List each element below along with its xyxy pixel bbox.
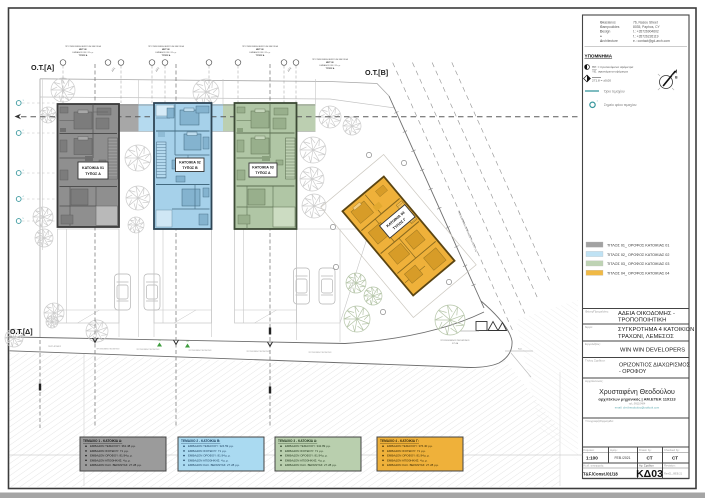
svg-text:ΤΥΠΟΣ Α: ΤΥΠΟΣ Α xyxy=(79,54,88,57)
svg-text:Έργο:: Έργο: xyxy=(584,325,593,329)
svg-text:ΕΜΒΑΔΟΝ ΑΠΟΘΗΚΗΣ: 4 μ.μ.: ΕΜΒΑΔΟΝ ΑΠΟΘΗΚΗΣ: 4 μ.μ. xyxy=(188,458,229,462)
svg-text:ΕΜΒΑΔΟΝ ΙΣΟΓΕΙΟΥ: 71 μ.μ.: ΕΜΒΑΔΟΝ ΙΣΟΓΕΙΟΥ: 71 μ.μ. xyxy=(188,449,227,453)
svg-text:T&F./Const./01/18: T&F./Const./01/18 xyxy=(583,472,618,477)
svg-text:ΠΡΟΤΕΙΝΟΜΕΝΗ ΔΙΩΡΟΦΗ ΚΑΤΟΙΚΙΑ: ΠΡΟΤΕΙΝΟΜΕΝΗ ΔΙΩΡΟΦΗ ΚΑΤΟΙΚΙΑ xyxy=(312,58,348,61)
svg-text:ΤΙΤΛΟΣ 04_ ΟΡΟΦΟΣ ΚΑΤΟΙΚΙΑΣ 04: ΤΙΤΛΟΣ 04_ ΟΡΟΦΟΣ ΚΑΤΟΙΚΙΑΣ 04 xyxy=(607,272,669,276)
svg-text:ΜΕΓ.ΥΨ.: ΜΕΓ.ΥΨ. xyxy=(326,62,334,64)
svg-text:ΥΕ. υφιστάμενα υψόμετρα: ΥΕ. υφιστάμενα υψόμετρα xyxy=(592,70,628,74)
svg-text:ΕΜΒΑΔΟΝ ΟΡΟΦΟΥ: 81.94 μ.μ.: ΕΜΒΑΔΟΝ ΟΡΟΦΟΥ: 81.94 μ.μ. xyxy=(188,454,231,458)
svg-text:Αρ. Σχεδίου: Αρ. Σχεδίου xyxy=(639,463,654,467)
svg-text:ΠΡΟΤΕΙΝΟΜΕΝΗ ΔΙΩΡΟΦΗ ΚΑΤΟΙΚΙΑ: ΠΡΟΤΕΙΝΟΜΕΝΗ ΔΙΩΡΟΦΗ ΚΑΤΟΙΚΙΑ xyxy=(148,45,184,48)
svg-text:Revision:: Revision: xyxy=(664,463,676,467)
svg-text:1:100: 1:100 xyxy=(586,456,598,461)
svg-text:ΜΕΓ.ΥΨ.: ΜΕΓ.ΥΨ. xyxy=(162,49,170,51)
svg-text:ΤΥΠΟΣ Α: ΤΥΠΟΣ Α xyxy=(256,54,265,57)
svg-text:ΤΡΟΠΟΠΟΙΗΤΙΚΗ: ΤΡΟΠΟΠΟΙΗΤΙΚΗ xyxy=(618,318,666,324)
svg-text:ΑΔΕΙΑ ΟΙΚΟΔΟΜΗΣ -: ΑΔΕΙΑ ΟΙΚΟΔΟΜΗΣ - xyxy=(618,311,675,317)
svg-text:Φάση/Προμελέτη:: Φάση/Προμελέτη: xyxy=(585,310,609,314)
svg-text:ΕΜΒΑΔΟΝ ΑΠΟΘΗΚΗΣ: 4 μ.μ.: ΕΜΒΑΔΟΝ ΑΠΟΘΗΚΗΣ: 4 μ.μ. xyxy=(285,458,326,462)
svg-text:e.: contact@gd-arch.com: e.: contact@gd-arch.com xyxy=(633,39,670,43)
svg-text:αρχιτέκτων μηχανικός | ΑΜ.ΕΤΕ: αρχιτέκτων μηχανικός | ΑΜ.ΕΤΕΚ 119113 xyxy=(598,397,676,402)
svg-text:ΤΥΠΟΣ Β: ΤΥΠΟΣ Β xyxy=(182,166,198,170)
svg-text:ΕΜΒΑΔΟΝ ΑΠΟΘΗΚΗΣ: 4 μ.μ.: ΕΜΒΑΔΟΝ ΑΠΟΘΗΚΗΣ: 4 μ.μ. xyxy=(387,458,428,462)
svg-text:ΕΜΒΑΔΟΝ ΤΕΜΑΧΙΟΥ: 361.48 μ.μ.: ΕΜΒΑΔΟΝ ΤΕΜΑΧΙΟΥ: 361.48 μ.μ. xyxy=(90,444,136,448)
svg-text:Αρχιτέκτονας:: Αρχιτέκτονας: xyxy=(585,379,603,383)
svg-text:ΕΜΒΑΔΟΝ ΟΙΚ. 81 τ.μ.: ΕΜΒΑΔΟΝ ΟΙΚ. 81 τ.μ. xyxy=(156,51,177,54)
svg-text:ΧΥΤ.ΔΑ: ΧΥΤ.ΔΑ xyxy=(452,342,459,345)
svg-text:Gkasianos: Gkasianos xyxy=(600,21,616,25)
svg-text:ΠΡΟΤΕΙΝΟΜΕΝΗ ΔΙΩΡΟΦΗ ΚΑΤΟΙΚΙΑ: ΠΡΟΤΕΙΝΟΜΕΝΗ ΔΙΩΡΟΦΗ ΚΑΤΟΙΚΙΑ xyxy=(242,45,278,48)
svg-text:ΕΜΒΑΔΟΝ ΟΙΚ. 81 τ.μ.: ΕΜΒΑΔΟΝ ΟΙΚ. 81 τ.μ. xyxy=(250,51,271,54)
svg-text:8035, Paphos, CY: 8035, Paphos, CY xyxy=(633,25,661,29)
svg-text:Σημείο ορίου τεμαχίου: Σημείο ορίου τεμαχίου xyxy=(604,103,637,107)
svg-text:ΕΜΒΑΔΟΝ ΚΑΛ. ΒΕΡΑΝΤΑΣ: 27.28 μ: ΕΜΒΑΔΟΝ ΚΑΛ. ΒΕΡΑΝΤΑΣ: 27.28 μ.μ. xyxy=(285,463,337,467)
svg-text:Υπογραφή/Σφραγίδα:: Υπογραφή/Σφραγίδα: xyxy=(585,419,614,423)
svg-text:ΤΙΤΛΟΣ 03_ ΟΡΟΦΟΣ ΚΑΤΟΙΚΙΑΣ 03: ΤΙΤΛΟΣ 03_ ΟΡΟΦΟΣ ΚΑΤΟΙΚΙΑΣ 03 xyxy=(607,262,669,266)
svg-text:Ο.Τ.[Α]: Ο.Τ.[Α] xyxy=(31,63,54,72)
svg-text:CT: CT xyxy=(672,456,678,461)
svg-text:Checked by:: Checked by: xyxy=(664,448,680,452)
svg-text:ΕΜΒΑΔΟΝ ΤΕΜΑΧΙΟΥ: 324.59 μ.μ.: ΕΜΒΑΔΟΝ ΤΕΜΑΧΙΟΥ: 324.59 μ.μ. xyxy=(188,444,234,448)
svg-text:ΚΑΤΟΙΚΙΑ 02: ΚΑΤΟΙΚΙΑ 02 xyxy=(179,161,200,165)
svg-text:WIN WIN DEVELOPERS: WIN WIN DEVELOPERS xyxy=(620,347,685,353)
svg-text:271.8 = ±0,00: 271.8 = ±0,00 xyxy=(592,79,611,83)
svg-text:ΣΥΓΚΡΟΤΗΜΑ 4 ΚΑΤΟΙΚΙΩΝ: ΣΥΓΚΡΟΤΗΜΑ 4 ΚΑΤΟΙΚΙΩΝ xyxy=(618,327,694,333)
svg-text:ΤΙΤΛΟΣ 01_ ΟΡΟΦΟΣ ΚΑΤΟΙΚΙΑΣ 01: ΤΙΤΛΟΣ 01_ ΟΡΟΦΟΣ ΚΑΤΟΙΚΙΑΣ 01 xyxy=(607,243,669,247)
svg-text:Χρυσταφένη Θεοδούλου: Χρυσταφένη Θεοδούλου xyxy=(599,388,675,396)
svg-text:76, Nasou Street: 76, Nasou Street xyxy=(633,21,658,25)
svg-text:ΤΥΠΟΣ Α: ΤΥΠΟΣ Α xyxy=(255,171,271,175)
svg-text:ΤΥΠΟΣ Α: ΤΥΠΟΣ Α xyxy=(162,54,171,57)
svg-text:ΠΡΟΤΕΙΝΟΜΕΝΗ ΔΙΩΡΟΦΗ ΚΑΤΟΙΚΙΑ: ΠΡΟΤΕΙΝΟΜΕΝΗ ΔΙΩΡΟΦΗ ΚΑΤΟΙΚΙΑ xyxy=(65,45,101,48)
svg-text:Τίτλος Σχεδίου:: Τίτλος Σχεδίου: xyxy=(585,359,605,363)
svg-text:ΤΕΜΑΧΙΟ 4 - ΚΑΤΟΙΚΙΑ Γ:: ΤΕΜΑΧΙΟ 4 - ΚΑΤΟΙΚΙΑ Γ: xyxy=(380,439,419,443)
svg-text:Design: Design xyxy=(600,30,610,34)
svg-text:Gampoulides: Gampoulides xyxy=(600,25,620,29)
svg-text:Β: Β xyxy=(675,76,678,80)
svg-text:ΤΕΜΑΧΙΟ 1 - ΚΑΤΟΙΚΙΑ Α:: ΤΕΜΑΧΙΟ 1 - ΚΑΤΟΙΚΙΑ Α: xyxy=(83,439,122,443)
svg-text:Ο.Τ.[Δ]: Ο.Τ.[Δ] xyxy=(10,329,33,336)
svg-text:ΕΜΒΑΔΟΝ ΤΕΜΑΧΙΟΥ: 376.40 μ.μ.: ΕΜΒΑΔΟΝ ΤΕΜΑΧΙΟΥ: 376.40 μ.μ. xyxy=(387,444,433,448)
svg-text:CT: CT xyxy=(646,456,652,461)
svg-text:ΜΕΓ.ΥΨ.: ΜΕΓ.ΥΨ. xyxy=(256,49,264,51)
svg-text:ΠΡΟΤΕΙΝΟΜΕΝΟΣ ΠΕΖΟΔΡΟΜΟΣ: ΠΡΟΤΕΙΝΟΜΕΝΟΣ ΠΕΖΟΔΡΟΜΟΣ xyxy=(440,339,470,342)
svg-text:FEB./2021: FEB./2021 xyxy=(614,456,630,460)
svg-text:ΕΜΒΑΔΟΝ ΤΕΜΑΧΙΟΥ: 342.89 μ.μ.: ΕΜΒΑΔΟΝ ΤΕΜΑΧΙΟΥ: 342.89 μ.μ. xyxy=(285,444,331,448)
svg-text:ΤΥΠΟΣ Α: ΤΥΠΟΣ Α xyxy=(326,67,335,70)
svg-text:ΕΜΒΑΔΟΝ ΙΣΟΓΕΙΟΥ: 71 μ.μ.: ΕΜΒΑΔΟΝ ΙΣΟΓΕΙΟΥ: 71 μ.μ. xyxy=(90,449,129,453)
svg-text:ΥΦΙΣΤ. ΔΡΟΜΟΣ: ΥΦΙΣΤ. ΔΡΟΜΟΣ xyxy=(48,345,61,348)
svg-text:ΕΜΒΑΔΟΝ ΚΑΛ. ΒΕΡΑΝΤΑΣ: 27.28 μ: ΕΜΒΑΔΟΝ ΚΑΛ. ΒΕΡΑΝΤΑΣ: 27.28 μ.μ. xyxy=(90,463,142,467)
svg-text:ΕΜΒΑΔΟΝ ΙΣΟΓΕΙΟΥ: 71 μ.μ.: ΕΜΒΑΔΟΝ ΙΣΟΓΕΙΟΥ: 71 μ.μ. xyxy=(285,449,324,453)
svg-text:ΤΕΜΑΧΙΟ 3 - ΚΑΤΟΙΚΙΑ Α:: ΤΕΜΑΧΙΟ 3 - ΚΑΤΟΙΚΙΑ Α: xyxy=(278,439,317,443)
svg-text:Ο.Τ.[Β]: Ο.Τ.[Β] xyxy=(365,68,388,77)
svg-text:ΕΜΒΑΔΟΝ ΟΙΚ. 81 τ.μ.: ΕΜΒΑΔΟΝ ΟΙΚ. 81 τ.μ. xyxy=(320,64,341,67)
svg-text:ΕΜΒΑΔΟΝ ΟΡΟΦΟΥ: 81.94 μ.μ.: ΕΜΒΑΔΟΝ ΟΡΟΦΟΥ: 81.94 μ.μ. xyxy=(387,454,430,458)
svg-text:ΕΜΒΑΔΟΝ ΚΑΛ. ΒΕΡΑΝΤΑΣ: 27.28 μ: ΕΜΒΑΔΟΝ ΚΑΛ. ΒΕΡΑΝΤΑΣ: 27.28 μ.μ. xyxy=(387,463,439,467)
svg-text:ΕΜΒΑΔΟΝ ΚΑΛ. ΒΕΡΑΝΤΑΣ: 27.28 μ: ΕΜΒΑΔΟΝ ΚΑΛ. ΒΕΡΑΝΤΑΣ: 27.28 μ.μ. xyxy=(188,463,240,467)
svg-text:ΕΜΒΑΔΟΝ ΙΣΟΓΕΙΟΥ: 71 μ.μ.: ΕΜΒΑΔΟΝ ΙΣΟΓΕΙΟΥ: 71 μ.μ. xyxy=(387,449,426,453)
svg-text:Ημέρ.:: Ημέρ.: xyxy=(610,448,618,452)
svg-text:Drawn by:: Drawn by: xyxy=(639,448,652,452)
svg-text:f.: +35726226119: f.: +35726226119 xyxy=(633,34,659,38)
svg-text:ΠΡ. = προτεινόμενα υψόμετρα: ΠΡ. = προτεινόμενα υψόμετρα xyxy=(592,65,634,69)
svg-text:- ΟΡΟΦΟΥ: - ΟΡΟΦΟΥ xyxy=(619,369,647,375)
svg-text:ΕΜΒΑΔΟΝ ΟΙΚ. 81 τ.μ.: ΕΜΒΑΔΟΝ ΟΙΚ. 81 τ.μ. xyxy=(73,51,94,54)
svg-text:ΕΜΒΑΔΟΝ ΟΡΟΦΟΥ: 81.94 μ.μ.: ΕΜΒΑΔΟΝ ΟΡΟΦΟΥ: 81.94 μ.μ. xyxy=(285,454,328,458)
svg-text:ΕΜΒΑΔΟΝ ΟΡΟΦΟΥ: 81.94 μ.μ.: ΕΜΒΑΔΟΝ ΟΡΟΦΟΥ: 81.94 μ.μ. xyxy=(90,454,133,458)
svg-text:ΤΡΑΧΩΝΙ, ΛΕΜΕΣΟΣ: ΤΡΑΧΩΝΙ, ΛΕΜΕΣΟΣ xyxy=(618,334,674,340)
svg-text:ΥΠΟΜΝΗΜΑ: ΥΠΟΜΝΗΜΑ xyxy=(585,54,613,59)
svg-text:+: + xyxy=(600,34,602,38)
svg-text:ΤΙΤΛΟΣ 02_ ΟΡΟΦΟΣ ΚΑΤΟΙΚΙΑΣ 02: ΤΙΤΛΟΣ 02_ ΟΡΟΦΟΣ ΚΑΤΟΙΚΙΑΣ 02 xyxy=(607,253,669,257)
svg-text:Εργολάβος:: Εργολάβος: xyxy=(585,342,601,346)
svg-text:ΚΔ03: ΚΔ03 xyxy=(636,468,663,480)
svg-text:ΚΑΤΟΙΚΙΑ 01: ΚΑΤΟΙΚΙΑ 01 xyxy=(82,166,104,170)
svg-text:email: chr.theodoulou@outlook.: email: chr.theodoulou@outlook.com xyxy=(615,406,660,410)
svg-text:ΟΡΙΖΟΝΤΙΟΣ ΔΙΑΧΩΡΙΣΜΟΣ: ΟΡΙΖΟΝΤΙΟΣ ΔΙΑΧΩΡΙΣΜΟΣ xyxy=(619,362,691,368)
svg-text:Κλίμακα:: Κλίμακα: xyxy=(584,448,595,452)
svg-text:Architecture: Architecture xyxy=(600,39,618,43)
svg-text:Όριο τεμαχίου: Όριο τεμαχίου xyxy=(603,90,625,94)
svg-text:ΤΥΠΟΣ Α: ΤΥΠΟΣ Α xyxy=(85,172,101,176)
svg-text:Κωδ. αναφοράς:: Κωδ. αναφοράς: xyxy=(584,463,605,467)
svg-text:t.: +35726904602: t.: +35726904602 xyxy=(633,30,659,34)
svg-text:ΚΑΤΟΙΚΙΑ 03: ΚΑΤΟΙΚΙΑ 03 xyxy=(252,166,273,170)
svg-text:Rev01_ΦΕΒ.21: Rev01_ΦΕΒ.21 xyxy=(664,472,683,476)
svg-text:ΜΕΓ.ΥΨ.: ΜΕΓ.ΥΨ. xyxy=(79,49,87,51)
svg-text:ΕΜΒΑΔΟΝ ΑΠΟΘΗΚΗΣ: 4 μ.μ.: ΕΜΒΑΔΟΝ ΑΠΟΘΗΚΗΣ: 4 μ.μ. xyxy=(90,458,131,462)
svg-text:ΤΕΜΑΧΙΟ 2 - ΚΑΤΟΙΚΙΑ Β:: ΤΕΜΑΧΙΟ 2 - ΚΑΤΟΙΚΙΑ Β: xyxy=(181,439,220,443)
